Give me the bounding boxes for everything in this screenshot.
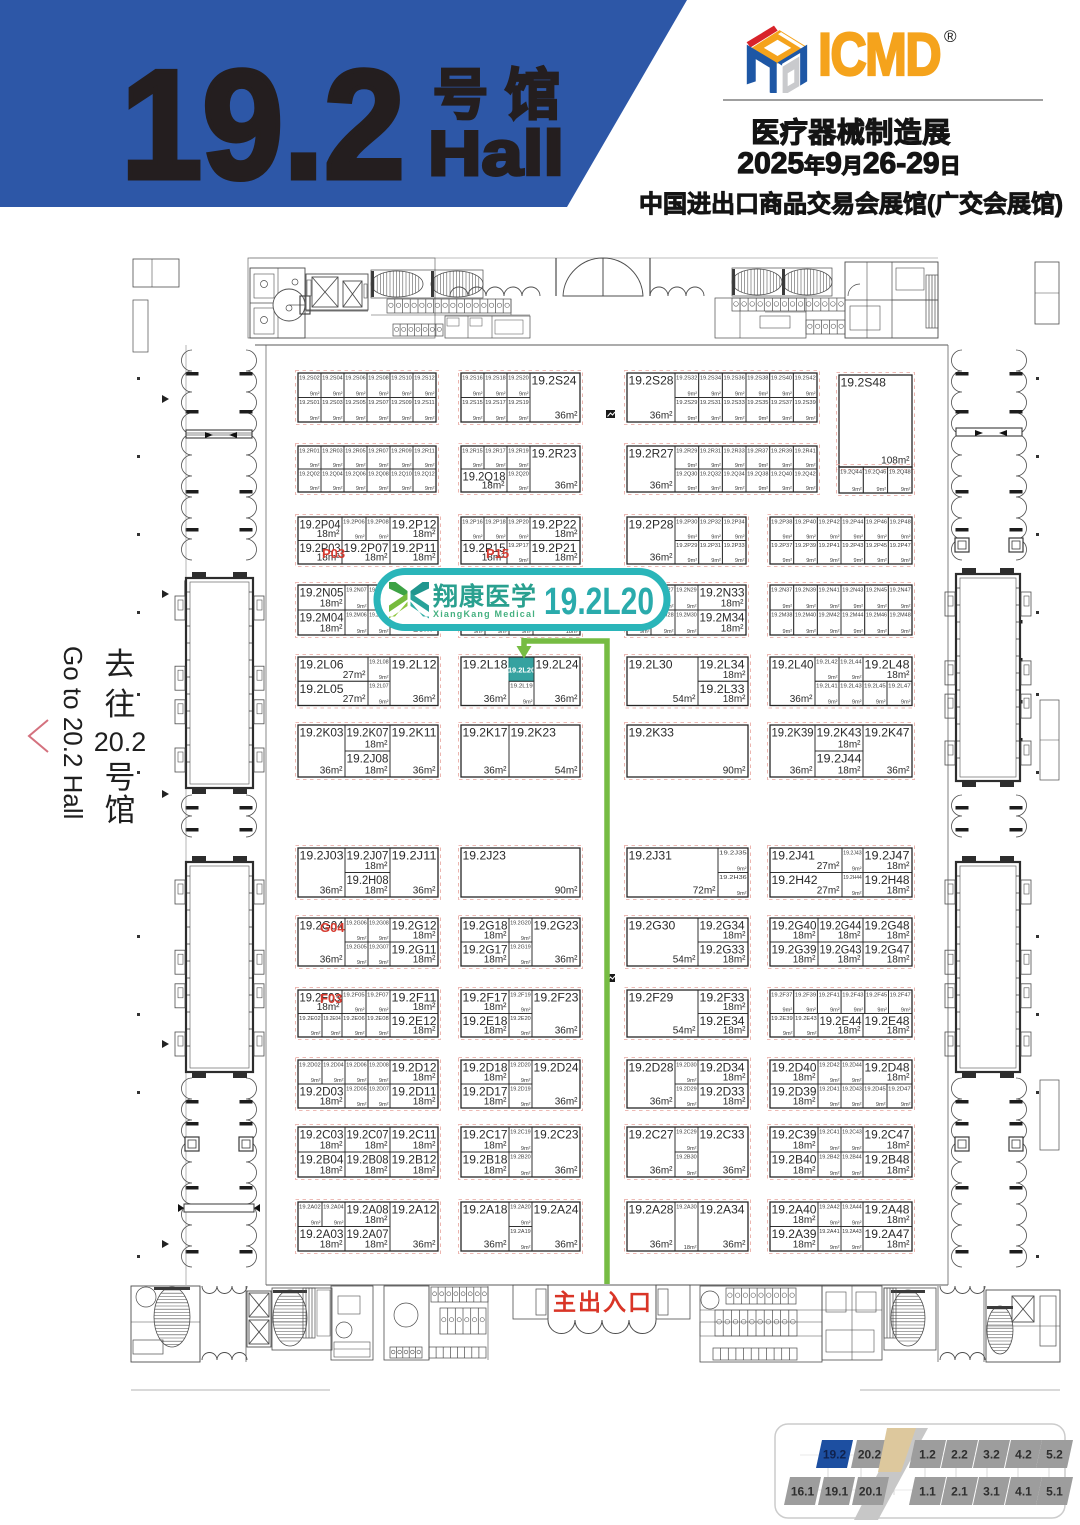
svg-text:9m²: 9m²	[379, 1102, 389, 1108]
svg-text:P15: P15	[486, 546, 509, 561]
svg-text:18m²: 18m²	[887, 931, 910, 942]
svg-text:19.2S07: 19.2S07	[368, 400, 389, 406]
svg-text:9m²: 9m²	[379, 391, 389, 397]
svg-text:Go to 20.2 Hall: Go to 20.2 Hall	[58, 646, 88, 819]
svg-text:9m²: 9m²	[759, 391, 769, 397]
svg-text:19.2Q10: 19.2Q10	[391, 471, 412, 477]
svg-text:18m²: 18m²	[793, 931, 816, 942]
svg-text:9m²: 9m²	[854, 558, 864, 564]
svg-text:19.2P38: 19.2P38	[771, 519, 792, 525]
svg-text:19.2S33: 19.2S33	[724, 400, 745, 406]
svg-text:19.2M06: 19.2M06	[346, 612, 367, 618]
svg-text:9m²: 9m²	[830, 1146, 840, 1152]
svg-text:19.2Q42: 19.2Q42	[795, 471, 816, 477]
svg-text:9m²: 9m²	[688, 391, 698, 397]
svg-text:19.2S04: 19.2S04	[322, 375, 343, 381]
svg-text:9m²: 9m²	[519, 486, 529, 492]
svg-text:19.2C17: 19.2C17	[463, 1128, 508, 1142]
svg-text:19.2F39: 19.2F39	[795, 992, 816, 998]
svg-text:19.2M44: 19.2M44	[842, 612, 863, 618]
svg-text:9m²: 9m²	[664, 629, 674, 635]
svg-text:9m²: 9m²	[311, 1031, 321, 1037]
svg-text:9m²: 9m²	[402, 463, 412, 469]
svg-text:19.2Q06: 19.2Q06	[345, 471, 366, 477]
svg-text:19.2S39: 19.2S39	[795, 400, 816, 406]
svg-text:9m²: 9m²	[379, 1007, 389, 1013]
svg-text:19.2A42: 19.2A42	[819, 1204, 840, 1210]
svg-text:9m²: 9m²	[901, 1007, 911, 1013]
svg-text:9m²: 9m²	[828, 675, 838, 681]
svg-text:9m²: 9m²	[806, 1007, 816, 1013]
svg-text:19.2J31: 19.2J31	[629, 849, 673, 863]
svg-text:19.2S12: 19.2S12	[414, 375, 435, 381]
svg-text:18m²: 18m²	[413, 529, 436, 540]
svg-text:18m²: 18m²	[413, 1097, 436, 1108]
svg-text:19.2G07: 19.2G07	[369, 944, 389, 950]
svg-text:19.2S35: 19.2S35	[747, 400, 768, 406]
svg-text:19.2L05: 19.2L05	[300, 682, 344, 696]
svg-text:19.2H36: 19.2H36	[719, 875, 747, 881]
svg-text:18m²: 18m²	[484, 1166, 507, 1177]
svg-text:P03: P03	[322, 546, 345, 561]
svg-text:9m²: 9m²	[333, 416, 343, 422]
svg-text:18m²: 18m²	[413, 1141, 436, 1152]
svg-text:9m²: 9m²	[901, 604, 911, 610]
svg-text:9m²: 9m²	[402, 486, 412, 492]
svg-text:19.2E04: 19.2E04	[323, 1016, 341, 1022]
svg-text:19.2L18: 19.2L18	[463, 658, 508, 672]
svg-text:9m²: 9m²	[852, 1220, 862, 1226]
svg-text:19.2P33: 19.2P33	[724, 543, 745, 549]
svg-text:19.2B08: 19.2B08	[347, 1153, 389, 1167]
svg-text:9m²: 9m²	[496, 416, 506, 422]
svg-text:19.2E08: 19.2E08	[367, 1016, 389, 1022]
svg-text:19.2K33: 19.2K33	[629, 726, 675, 740]
svg-text:19.2B40: 19.2B40	[772, 1153, 817, 1167]
svg-text:18m²: 18m²	[413, 1166, 436, 1177]
svg-text:19.2G19: 19.2G19	[510, 944, 531, 950]
svg-text:9m²: 9m²	[379, 699, 389, 705]
svg-text:9m²: 9m²	[355, 1031, 365, 1037]
svg-text:9m²: 9m²	[852, 1245, 862, 1251]
svg-text:36m²: 36m²	[650, 1240, 673, 1251]
svg-text:9m²: 9m²	[521, 960, 531, 966]
svg-text:19.2E02: 19.2E02	[299, 1016, 321, 1022]
svg-text:9m²: 9m²	[473, 463, 483, 469]
svg-text:19.2P40: 19.2P40	[795, 519, 816, 525]
svg-text:18m²: 18m²	[413, 553, 436, 564]
svg-text:18m²: 18m²	[793, 1215, 816, 1226]
svg-text:9m²: 9m²	[901, 558, 911, 564]
svg-text:9m²: 9m²	[496, 534, 506, 540]
svg-text:18m²: 18m²	[838, 931, 861, 942]
svg-text:9m²: 9m²	[496, 391, 506, 397]
svg-text:9m²: 9m²	[877, 534, 887, 540]
svg-text:19.2D07: 19.2D07	[369, 1086, 389, 1092]
svg-text:19.2M40: 19.2M40	[795, 612, 816, 618]
svg-text:18m²: 18m²	[317, 529, 340, 540]
svg-text:36m²: 36m²	[484, 766, 507, 777]
svg-text:19.2R07: 19.2R07	[368, 448, 389, 454]
svg-text:19.2L06: 19.2L06	[300, 658, 344, 672]
svg-text:19.2L47: 19.2L47	[888, 684, 911, 690]
svg-text:9m²: 9m²	[334, 1220, 344, 1226]
svg-text:54m²: 54m²	[673, 694, 696, 705]
svg-text:19.2N39: 19.2N39	[795, 587, 816, 593]
svg-text:9m²: 9m²	[473, 391, 483, 397]
svg-text:9m²: 9m²	[830, 1102, 840, 1108]
svg-text:9m²: 9m²	[783, 629, 793, 635]
svg-text:27m²: 27m²	[343, 694, 366, 705]
svg-text:19.2K47: 19.2K47	[865, 726, 910, 740]
svg-text:19.2S29: 19.2S29	[676, 400, 697, 406]
svg-text:9m²: 9m²	[356, 416, 366, 422]
svg-text:9m²: 9m²	[735, 558, 745, 564]
svg-text:19.2C07: 19.2C07	[347, 1128, 389, 1142]
svg-text:19.2Q32: 19.2Q32	[700, 471, 721, 477]
svg-text:9m²: 9m²	[828, 699, 838, 705]
svg-text:9m²: 9m²	[876, 1102, 886, 1108]
svg-text:9m²: 9m²	[877, 629, 887, 635]
svg-text:19.2R31: 19.2R31	[700, 448, 721, 454]
svg-text:19.2P48: 19.2P48	[890, 519, 911, 525]
svg-text:9m²: 9m²	[379, 1031, 389, 1037]
svg-text:36m²: 36m²	[413, 694, 436, 705]
svg-text:18m²: 18m²	[484, 931, 507, 942]
svg-text:18m²: 18m²	[320, 1097, 343, 1108]
svg-text:9m²: 9m²	[759, 486, 769, 492]
svg-text:9m²: 9m²	[854, 1007, 864, 1013]
svg-text:19.2D02: 19.2D02	[299, 1062, 321, 1068]
svg-text:19.2Q20: 19.2Q20	[508, 471, 529, 477]
svg-text:9m²: 9m²	[523, 699, 533, 705]
svg-text:19.2N41: 19.2N41	[819, 587, 840, 593]
svg-text:19.2Q46: 19.2Q46	[865, 469, 887, 475]
svg-text:主出入口: 主出入口	[553, 1289, 653, 1315]
svg-text:9m²: 9m²	[830, 1078, 840, 1084]
svg-text:18m²: 18m²	[320, 1240, 343, 1251]
svg-text:19.2F37: 19.2F37	[771, 992, 792, 998]
svg-text:18m²: 18m²	[723, 694, 746, 705]
svg-text:18m²: 18m²	[365, 1166, 388, 1177]
svg-text:9m²: 9m²	[806, 391, 816, 397]
svg-text:19.2P41: 19.2P41	[819, 543, 840, 549]
svg-text:19.2S24: 19.2S24	[532, 374, 577, 388]
svg-text:36m²: 36m²	[650, 1097, 673, 1108]
svg-text:19.2Q30: 19.2Q30	[676, 471, 697, 477]
svg-text:19.2E43: 19.2E43	[795, 1016, 817, 1022]
svg-text:19.2N05: 19.2N05	[300, 586, 344, 600]
svg-text:19.2P47: 19.2P47	[890, 543, 911, 549]
svg-text:9m²: 9m²	[687, 1102, 697, 1108]
svg-text:9m²: 9m²	[357, 629, 367, 635]
svg-text:19.2N07: 19.2N07	[346, 587, 367, 593]
svg-text:20.1: 20.1	[859, 1485, 883, 1499]
svg-text:19.2P43: 19.2P43	[842, 543, 863, 549]
svg-text:19.2D08: 19.2D08	[369, 1062, 389, 1068]
svg-text:9m²: 9m²	[782, 416, 792, 422]
svg-text:9m²: 9m²	[783, 534, 793, 540]
svg-text:9m²: 9m²	[521, 1031, 531, 1037]
svg-text:19.2Q48: 19.2Q48	[889, 469, 911, 475]
svg-text:9m²: 9m²	[877, 1007, 887, 1013]
svg-text:9m²: 9m²	[519, 416, 529, 422]
svg-text:9m²: 9m²	[379, 960, 389, 966]
svg-text:19.2D24: 19.2D24	[534, 1061, 579, 1075]
svg-text:19.2S01: 19.2S01	[299, 400, 320, 406]
svg-text:19.2S05: 19.2S05	[345, 400, 366, 406]
svg-text:9m²: 9m²	[521, 1078, 531, 1084]
svg-text:19.2S31: 19.2S31	[700, 400, 721, 406]
svg-text:18m²: 18m²	[793, 1166, 816, 1177]
svg-text:1.2: 1.2	[919, 1448, 936, 1462]
svg-text:18m²: 18m²	[484, 1073, 507, 1084]
svg-text:19.2P30: 19.2P30	[676, 519, 697, 525]
svg-text:19.2P45: 19.2P45	[866, 543, 887, 549]
svg-text:19.2M46: 19.2M46	[866, 612, 887, 618]
svg-text:19.2L19: 19.2L19	[510, 684, 533, 690]
svg-text:19.2Q04: 19.2Q04	[322, 471, 343, 477]
svg-text:18m²: 18m²	[413, 1002, 436, 1013]
svg-text:19.2S09: 19.2S09	[391, 400, 412, 406]
svg-text:19.2R37: 19.2R37	[747, 448, 768, 454]
svg-text:9m²: 9m²	[830, 604, 840, 610]
svg-text:18m²: 18m²	[413, 955, 436, 966]
svg-text:36m²: 36m²	[650, 553, 673, 564]
svg-text:9m²: 9m²	[711, 534, 721, 540]
svg-text:19.2M04: 19.2M04	[300, 611, 344, 625]
svg-text:9m²: 9m²	[688, 416, 698, 422]
svg-text:18m²: 18m²	[723, 955, 746, 966]
svg-text:9m²: 9m²	[711, 486, 721, 492]
svg-text:18m²: 18m²	[793, 955, 816, 966]
svg-text:19.2P16: 19.2P16	[462, 519, 483, 525]
svg-text:19.2P28: 19.2P28	[629, 518, 674, 532]
svg-text:18m²: 18m²	[887, 1166, 910, 1177]
svg-text:F03: F03	[320, 991, 342, 1006]
svg-text:9m²: 9m²	[688, 486, 698, 492]
svg-text:19.2B30: 19.2B30	[676, 1154, 697, 1160]
svg-text:19.2J43: 19.2J43	[843, 850, 862, 856]
svg-text:19.2R41: 19.2R41	[795, 448, 816, 454]
svg-text:19.2D42: 19.2D42	[819, 1062, 840, 1068]
svg-text:9m²: 9m²	[806, 629, 816, 635]
svg-text:18m²: 18m²	[887, 1215, 910, 1226]
svg-text:19.2J44: 19.2J44	[817, 752, 862, 766]
svg-text:9m²: 9m²	[688, 463, 698, 469]
svg-text:9m²: 9m²	[854, 534, 864, 540]
svg-text:19.2P46: 19.2P46	[866, 519, 887, 525]
svg-text:9m²: 9m²	[379, 416, 389, 422]
svg-text:9m²: 9m²	[783, 1007, 793, 1013]
svg-text:19.2D20: 19.2D20	[510, 1062, 531, 1068]
svg-text:19.2D04: 19.2D04	[323, 1062, 344, 1068]
svg-text:9m²: 9m²	[310, 486, 320, 492]
svg-text:19.2R17: 19.2R17	[485, 448, 506, 454]
svg-text:18m²: 18m²	[887, 1073, 910, 1084]
svg-text:9m²: 9m²	[830, 558, 840, 564]
svg-text:9m²: 9m²	[355, 1007, 365, 1013]
svg-text:去: 去	[105, 647, 136, 682]
svg-text:9m²: 9m²	[357, 1102, 367, 1108]
svg-text:36m²: 36m²	[320, 886, 343, 897]
svg-text:19.2C39: 19.2C39	[772, 1128, 817, 1142]
svg-text:19.2M42: 19.2M42	[819, 612, 840, 618]
svg-text:19.2N29: 19.2N29	[676, 587, 697, 593]
svg-text:19.2L42: 19.2L42	[816, 659, 838, 665]
svg-text:9m²: 9m²	[331, 1031, 341, 1037]
svg-text:19.2G30: 19.2G30	[629, 919, 676, 933]
svg-text:19.2C33: 19.2C33	[700, 1128, 745, 1142]
svg-text:19.2Q40: 19.2Q40	[771, 471, 792, 477]
svg-text:9m²: 9m²	[519, 391, 529, 397]
svg-text:36m²: 36m²	[484, 694, 507, 705]
svg-text:9m²: 9m²	[901, 487, 911, 493]
svg-text:9m²: 9m²	[901, 1102, 911, 1108]
svg-text:19.2L43: 19.2L43	[840, 684, 862, 690]
svg-text:19.2S37: 19.2S37	[771, 400, 792, 406]
svg-text:19.2E06: 19.2E06	[343, 1016, 365, 1022]
svg-text:36m²: 36m²	[413, 1240, 436, 1251]
svg-text:19.2P32: 19.2P32	[700, 519, 721, 525]
svg-text:19.2Q44: 19.2Q44	[840, 469, 862, 475]
svg-text:9m²: 9m²	[357, 604, 367, 610]
svg-text:9m²: 9m²	[357, 1078, 367, 1084]
svg-text:36m²: 36m²	[790, 766, 813, 777]
svg-text:9m²: 9m²	[830, 1007, 840, 1013]
svg-text:19.2C41: 19.2C41	[819, 1129, 840, 1135]
svg-text:18m²: 18m²	[482, 481, 505, 492]
svg-text:9m²: 9m²	[521, 1220, 531, 1226]
svg-text:3.1: 3.1	[983, 1485, 1000, 1499]
svg-text:9m²: 9m²	[496, 463, 506, 469]
svg-text:19.2L44: 19.2L44	[840, 659, 862, 665]
svg-text:19.2P31: 19.2P31	[700, 543, 721, 549]
svg-text:9m²: 9m²	[806, 463, 816, 469]
svg-text:18m²: 18m²	[721, 599, 744, 610]
svg-text:36m²: 36m²	[555, 411, 578, 422]
svg-text:19.2R19: 19.2R19	[508, 448, 529, 454]
svg-text:9m²: 9m²	[830, 534, 840, 540]
svg-text:4.1: 4.1	[1015, 1485, 1032, 1499]
svg-text:9m²: 9m²	[852, 487, 862, 493]
svg-text:19.2R05: 19.2R05	[345, 448, 366, 454]
svg-text:19.2F07: 19.2F07	[367, 992, 389, 998]
svg-text:2.2: 2.2	[951, 1448, 968, 1462]
svg-text:翔康医学: 翔康医学	[433, 582, 537, 611]
svg-text:9m²: 9m²	[379, 675, 389, 681]
svg-text:18m²: 18m²	[723, 1026, 746, 1037]
svg-text:19.2A20: 19.2A20	[510, 1204, 531, 1210]
svg-text:36m²: 36m²	[723, 1166, 746, 1177]
svg-text:19.2K03: 19.2K03	[300, 726, 344, 740]
svg-text:36m²: 36m²	[555, 955, 578, 966]
svg-text:9m²: 9m²	[355, 534, 365, 540]
svg-text:9m²: 9m²	[519, 463, 529, 469]
svg-text:19.2K43: 19.2K43	[817, 726, 862, 740]
svg-text:19.2P44: 19.2P44	[842, 519, 863, 525]
svg-text:19.2L41: 19.2L41	[816, 684, 838, 690]
svg-text:19.2A30: 19.2A30	[676, 1204, 697, 1210]
svg-text:9m²: 9m²	[854, 604, 864, 610]
svg-text:9m²: 9m²	[807, 1031, 817, 1037]
svg-text:19.2S16: 19.2S16	[462, 375, 483, 381]
svg-text:19.2F43: 19.2F43	[842, 992, 863, 998]
svg-text:19.2L30: 19.2L30	[629, 658, 673, 672]
svg-text:9m²: 9m²	[852, 1146, 862, 1152]
svg-text:18m²: 18m²	[413, 931, 436, 942]
svg-text:18m²: 18m²	[413, 1026, 436, 1037]
svg-text:19.2M34: 19.2M34	[700, 611, 745, 625]
svg-text:18m²: 18m²	[484, 955, 507, 966]
svg-text:9m²: 9m²	[688, 558, 698, 564]
svg-text:9m²: 9m²	[782, 463, 792, 469]
svg-text:19.2P37: 19.2P37	[771, 543, 792, 549]
svg-text:36m²: 36m²	[413, 886, 436, 897]
svg-text:19.2N47: 19.2N47	[890, 587, 911, 593]
svg-text:36m²: 36m²	[723, 1240, 746, 1251]
svg-text:9m²: 9m²	[521, 1007, 531, 1013]
svg-text:往: 往	[105, 687, 136, 722]
svg-text:9m²: 9m²	[735, 534, 745, 540]
svg-text:18m²: 18m²	[484, 1026, 507, 1037]
svg-text:19.2G23: 19.2G23	[534, 919, 579, 933]
svg-text:9m²: 9m²	[687, 629, 697, 635]
svg-text:19.2A12: 19.2A12	[392, 1203, 437, 1217]
svg-text:19.2S10: 19.2S10	[391, 375, 412, 381]
svg-text:19.2R09: 19.2R09	[391, 448, 412, 454]
svg-text:19.2S34: 19.2S34	[700, 375, 721, 381]
svg-text:19.2C47: 19.2C47	[865, 1128, 910, 1142]
svg-text:19.2F19: 19.2F19	[510, 992, 531, 998]
svg-text:19.2E20: 19.2E20	[510, 1016, 531, 1022]
svg-text:9m²: 9m²	[735, 416, 745, 422]
svg-text:9m²: 9m²	[310, 391, 320, 397]
svg-text:19.2B04: 19.2B04	[300, 1153, 344, 1167]
svg-text:19.2A28: 19.2A28	[629, 1203, 674, 1217]
svg-text:19.2J08: 19.2J08	[347, 752, 389, 766]
svg-text:18m²: 18m²	[838, 740, 861, 751]
svg-text:19.2R01: 19.2R01	[299, 448, 320, 454]
svg-text:XiangKang Medical: XiangKang Medical	[433, 609, 536, 619]
svg-text:9m²: 9m²	[687, 1078, 697, 1084]
svg-text:18m²: 18m²	[723, 1097, 746, 1108]
svg-text:9m²: 9m²	[783, 558, 793, 564]
svg-text:19.2J23: 19.2J23	[463, 849, 507, 863]
svg-text:9m²: 9m²	[357, 960, 367, 966]
svg-text:19.2R33: 19.2R33	[724, 448, 745, 454]
svg-text:9m²: 9m²	[402, 416, 412, 422]
svg-text:19.2S28: 19.2S28	[629, 374, 674, 388]
svg-text:18m²: 18m²	[365, 1141, 388, 1152]
svg-text:9m²: 9m²	[852, 1102, 862, 1108]
svg-text:2.1: 2.1	[951, 1485, 968, 1499]
svg-text:19.2G20: 19.2G20	[510, 920, 531, 926]
svg-text:18m²: 18m²	[793, 1097, 816, 1108]
svg-text:19.2J11: 19.2J11	[392, 849, 437, 863]
svg-text:18m²: 18m²	[887, 1026, 910, 1037]
svg-text:18m²: 18m²	[723, 931, 746, 942]
svg-text:9m²: 9m²	[854, 629, 864, 635]
svg-text:18m²: 18m²	[887, 955, 910, 966]
svg-text:9m²: 9m²	[333, 391, 343, 397]
svg-text:19.2F05: 19.2F05	[343, 992, 365, 998]
svg-text:19.2S42: 19.2S42	[795, 375, 816, 381]
svg-text:9m²: 9m²	[379, 463, 389, 469]
svg-text:19.2P18: 19.2P18	[485, 519, 506, 525]
svg-text:19.2N43: 19.2N43	[842, 587, 863, 593]
svg-text:9m²: 9m²	[737, 891, 747, 897]
